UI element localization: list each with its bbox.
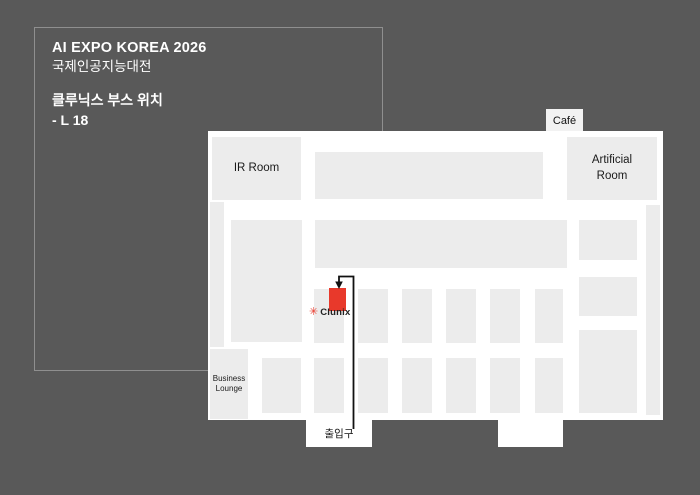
booth-block: [314, 358, 344, 413]
booth-block: [315, 220, 567, 268]
artificial-room-label: Artificial Room: [583, 153, 641, 184]
cafe-label: Café: [553, 115, 576, 127]
booth-block: [262, 358, 301, 413]
entrance-label: 출입구: [325, 426, 354, 441]
entrance-tab: 출입구: [306, 420, 372, 447]
booth-block: [579, 330, 637, 413]
ir-room: IR Room: [212, 137, 301, 200]
booth-block: [231, 220, 302, 342]
booth-block: [402, 358, 432, 413]
booth-block: [446, 289, 476, 343]
booth-block: [579, 277, 637, 316]
booth-block: [490, 289, 520, 343]
clunix-asterisk-icon: ✳: [309, 307, 318, 318]
cafe-room: Café: [546, 109, 583, 132]
booth-number: - L 18: [52, 112, 382, 129]
expo-title: AI EXPO KOREA 2026: [52, 40, 382, 57]
ir-room-label: IR Room: [228, 161, 286, 177]
booth-block: [535, 358, 563, 413]
business-lounge: Business Lounge: [210, 349, 248, 419]
booth-block: [358, 289, 388, 343]
booth-block: [210, 202, 224, 347]
booth-block: [446, 358, 476, 413]
booth-block: [402, 289, 432, 343]
booth-block: [579, 220, 637, 260]
booth-block: [315, 152, 543, 199]
booth-location-label: 클루닉스 부스 위치: [52, 92, 382, 109]
booth-block: [646, 205, 660, 415]
floor-plan: IR Room Artificial Room Business Lounge …: [208, 131, 663, 420]
expo-subtitle: 국제인공지능대전: [52, 58, 382, 75]
artificial-room: Artificial Room: [567, 137, 657, 200]
booth-block: [535, 289, 563, 343]
clunix-logo: ✳ Clunix: [309, 305, 350, 319]
business-lounge-label: Business Lounge: [212, 374, 246, 395]
clunix-company-label: Clunix: [320, 307, 350, 318]
entrance-tab-right: [498, 420, 563, 447]
booth-block: [358, 358, 388, 413]
booth-block: [490, 358, 520, 413]
